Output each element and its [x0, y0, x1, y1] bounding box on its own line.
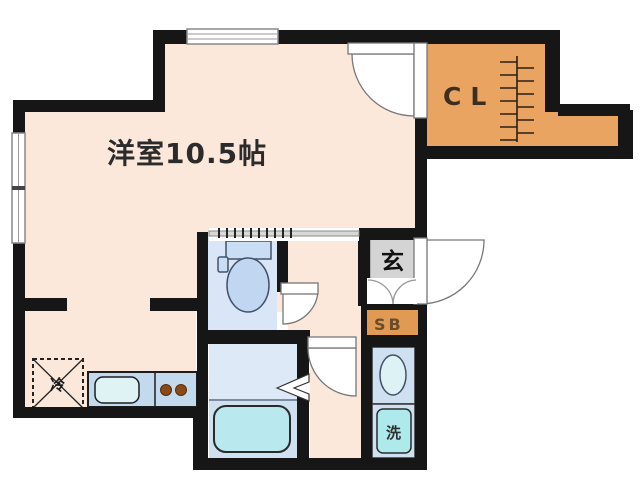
- refrigerator-label: 冷: [50, 376, 65, 394]
- washing-machine-label: 洗: [386, 424, 401, 442]
- entrance-door: [414, 238, 484, 304]
- threshold-line: [209, 228, 359, 241]
- floor-plan-canvas: 洋室10.5帖 CL 玄 SB 洗 冷: [0, 0, 640, 483]
- closet-label: CL: [443, 82, 495, 111]
- top-window: [187, 29, 278, 44]
- bathtub: [214, 406, 290, 452]
- shoe-box-doors: [367, 278, 417, 304]
- main-room-label: 洋室10.5帖: [107, 137, 267, 170]
- shoe-box-label: SB: [374, 315, 404, 334]
- kitchen-counter: [88, 372, 197, 407]
- washbasin: [380, 355, 406, 395]
- entrance-label: 玄: [381, 248, 404, 275]
- floor-plan: 洋室10.5帖 CL 玄 SB 洗 冷: [0, 0, 640, 483]
- sink: [95, 377, 139, 403]
- left-window: [12, 133, 25, 243]
